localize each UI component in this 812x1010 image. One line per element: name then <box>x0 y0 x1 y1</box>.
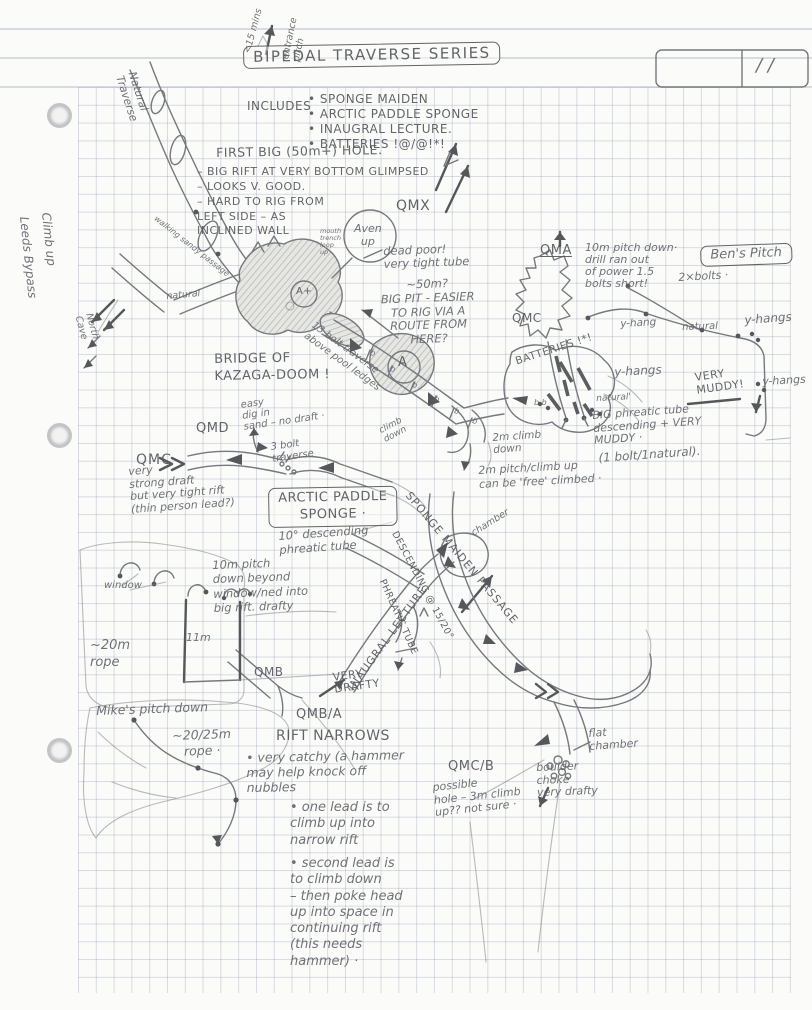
label-big-phreatic: BIG phreatic tube descending + VERY MUDD… <box>592 402 703 447</box>
label-climb-down-c: climb down <box>378 417 409 446</box>
label-yhangs-2: y-hangs <box>744 311 792 328</box>
label-eleven-m: 11m <box>186 632 211 645</box>
label-fbh-notes: – BIG RIFT AT VERY BOTTOM GLIMPSED – LOO… <box>197 165 429 239</box>
label-qmcb-note: possible hole – 3m climb up?? not sure · <box>432 773 523 820</box>
label-bolt-b-4: b <box>433 394 441 404</box>
label-two-bolts: 2×bolts · <box>678 269 729 284</box>
label-arctic: ARCTIC PADDLE SPONGE · <box>268 486 398 528</box>
label-bolt-bb: b b <box>534 398 547 407</box>
label-three-bolt: 3 bolt traverse <box>270 436 315 465</box>
label-bridge: BRIDGE OF KAZAGA-DOOM ! <box>214 350 330 386</box>
label-qma-note: 10m pitch down· drill ran out of power 1… <box>585 242 677 290</box>
label-rift-narrows: RIFT NARROWS <box>276 728 390 744</box>
label-hole-a-plus: A+ <box>296 286 312 298</box>
label-rift-note-2: • one lead is to climb up into narrow ri… <box>290 800 390 849</box>
label-ten-m-pitch: 10m pitch down beyond window/ned into bi… <box>212 555 309 616</box>
label-leeds-bypass: Leeds Bypass <box>16 216 38 299</box>
label-bens-pitch: Ben's Pitch <box>700 243 792 267</box>
label-fbh-title: FIRST BIG (50m+) HOLE. <box>216 143 383 160</box>
label-rope-20: ~20m rope <box>90 638 130 672</box>
label-qma: QMA <box>540 244 572 259</box>
label-bolt-b-6: b <box>471 416 479 426</box>
label-big-pit-note: ~50m? BIG PIT - EASIER TO RIG VIA A ROUT… <box>362 275 494 348</box>
label-bolt-b-2: b <box>389 364 397 374</box>
label-qmb: QMB <box>254 666 284 680</box>
label-boulder-choke: boulder choke very drafty <box>536 760 598 800</box>
label-bolt-b-3: b <box>411 380 419 390</box>
label-date-slashes: / / <box>756 56 774 77</box>
label-chamber: chamber <box>470 508 511 540</box>
label-qmx: QMX <box>396 198 430 214</box>
label-natural-3: natural' <box>596 392 631 404</box>
label-strong-draft: very strong draft but very tight rift (t… <box>128 459 235 517</box>
label-pitch-2m: 2m pitch/climb up can be 'free' climbed … <box>478 458 602 493</box>
label-pitch-2m-paren: (1 bolt/1natural). <box>598 445 701 466</box>
label-qmcb: QMC/B <box>448 760 494 775</box>
label-climb-up: Climb up <box>38 212 57 267</box>
label-ten-deg: 10° descending phreatic tube <box>278 524 370 558</box>
label-mikes: Mike's pitch down <box>96 700 208 718</box>
label-dead-poor: dead poor! very tight tube <box>383 242 470 271</box>
label-natural-2: natural <box>682 321 718 334</box>
label-bolt-b-5: b <box>453 406 461 416</box>
label-natural-small-1: natural <box>166 289 201 303</box>
survey-page: BIPEDAL TRAVERSE SERIESINCLUDES• SPONGE … <box>0 0 812 1010</box>
label-very-muddy: VERY MUDDY! <box>694 365 745 397</box>
label-includes-lead: INCLUDES <box>247 100 311 114</box>
label-rift-note-1: • very catchy (a hammer may help knock o… <box>246 747 405 795</box>
label-bolt-b-1: b <box>369 348 377 358</box>
label-mouth-trench: mouth trench loop up <box>320 228 341 257</box>
label-qmd-note: easy dig in sand – no draft · <box>240 389 325 433</box>
label-yhangs-3: y-hangs <box>614 364 662 380</box>
label-rift-note-3: • second lead is to climb down – then po… <box>290 856 403 970</box>
label-north-cave: North Cave <box>72 312 101 344</box>
label-yhangs-4: y-hangs <box>762 374 806 389</box>
label-hole-a: A <box>398 356 407 371</box>
label-qmd: QMD <box>196 422 229 437</box>
label-layer: BIPEDAL TRAVERSE SERIESINCLUDES• SPONGE … <box>0 0 812 1010</box>
label-qmb-a: QMB/A <box>296 708 342 723</box>
label-yhang-1: y-hang <box>620 316 657 330</box>
label-window: window <box>104 580 142 592</box>
label-qmc-right: QMC <box>512 312 542 326</box>
label-mikes-rope: ~20/25m rope · <box>172 726 232 759</box>
label-batteries-label: BATTERIES !*! <box>514 331 594 367</box>
label-flat-chamber: flat chamber <box>588 725 638 754</box>
label-climb-down-2m: 2m climb down <box>492 429 542 456</box>
label-aven-up: Aven up <box>354 222 382 248</box>
label-natural-traverse: Natural Traverse <box>113 70 153 123</box>
label-very-drafty: VERY DRAFTY <box>332 666 381 696</box>
